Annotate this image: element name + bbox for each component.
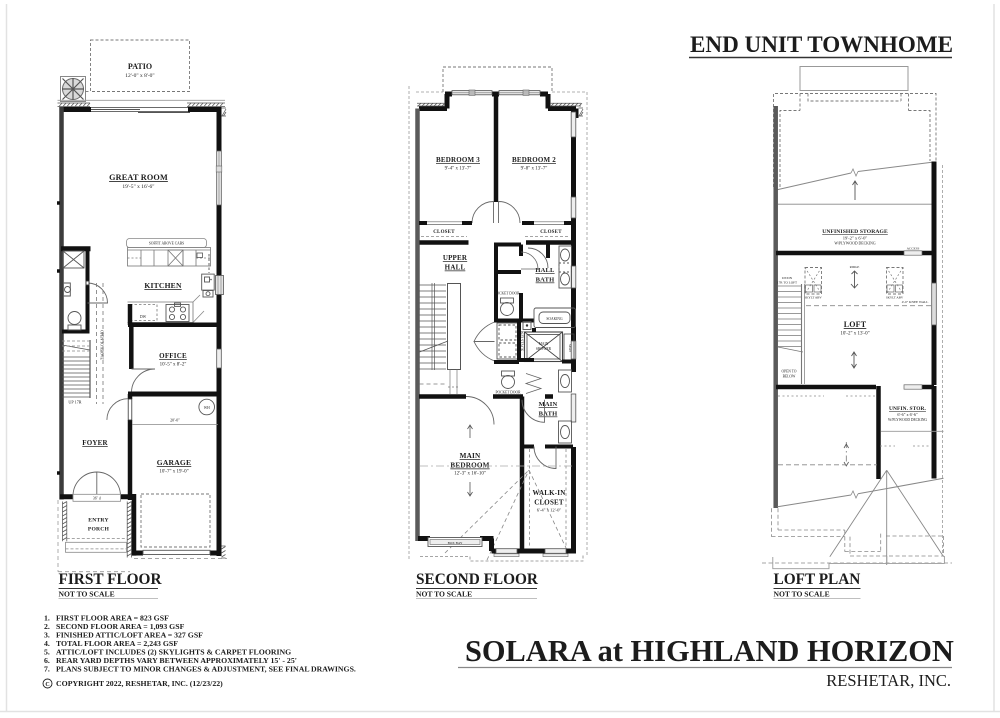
svg-text:LOFT: LOFT	[844, 320, 867, 329]
svg-text:SOLARA at HIGHLAND HORIZON: SOLARA at HIGHLAND HORIZON	[465, 634, 954, 668]
svg-text:6'-4" x 12'-0": 6'-4" x 12'-0"	[537, 508, 562, 513]
svg-text:BOX BAY: BOX BAY	[448, 541, 463, 545]
svg-text:PORCH: PORCH	[88, 527, 110, 533]
svg-text:9'-4" x 13'-7": 9'-4" x 13'-7"	[445, 167, 472, 172]
svg-text:BATH: BATH	[539, 411, 558, 418]
svg-text:19'-2" x 6'-0": 19'-2" x 6'-0"	[843, 236, 868, 241]
svg-text:MAIN: MAIN	[539, 401, 558, 408]
svg-text:NOT TO SCALE: NOT TO SCALE	[59, 590, 115, 599]
svg-text:PLANS SUBJECT TO MINOR CHANGES: PLANS SUBJECT TO MINOR CHANGES & ADJUSTM…	[56, 665, 356, 674]
svg-text:10'-7" x 19'-0": 10'-7" x 19'-0"	[159, 470, 188, 475]
svg-text:GREAT ROOM: GREAT ROOM	[109, 173, 168, 182]
svg-text:6'-6" x 6'-6": 6'-6" x 6'-6"	[897, 412, 918, 417]
svg-text:KITCHEN: KITCHEN	[144, 281, 182, 290]
svg-text:BEDROOM 2: BEDROOM 2	[512, 156, 556, 164]
svg-text:FOYER: FOYER	[82, 439, 108, 447]
svg-text:CLOSET: CLOSET	[540, 230, 562, 235]
svg-text:9'-8" x 13'-7": 9'-8" x 13'-7"	[521, 167, 548, 172]
svg-text:DW: DW	[140, 315, 147, 319]
svg-text:BATH: BATH	[536, 277, 555, 284]
svg-text:NOT TO SCALE: NOT TO SCALE	[774, 590, 830, 599]
svg-text:W/PLYWOOD DECKING: W/PLYWOOD DECKING	[888, 418, 927, 422]
svg-text:BELOW: BELOW	[783, 375, 796, 379]
svg-text:NOT TO SCALE: NOT TO SCALE	[416, 590, 472, 599]
svg-text:CLOSET: CLOSET	[433, 230, 455, 235]
svg-text:UNFINISHED STORAGE: UNFINISHED STORAGE	[822, 229, 888, 235]
svg-text:COPYRIGHT 2022, RESHETAR, INC.: COPYRIGHT 2022, RESHETAR, INC. (12/23/22…	[56, 679, 223, 688]
svg-text:36" d: 36" d	[93, 497, 101, 501]
svg-text:C: C	[45, 682, 49, 688]
svg-text:RESHETAR, INC.: RESHETAR, INC.	[826, 671, 951, 690]
svg-text:SEAT: SEAT	[568, 344, 572, 353]
svg-text:WH: WH	[204, 406, 210, 410]
svg-text:WALK-IN: WALK-IN	[533, 489, 566, 497]
svg-text:12'-0" x 8'-0": 12'-0" x 8'-0"	[125, 73, 154, 79]
svg-text:HALL: HALL	[445, 264, 466, 272]
svg-text:SOFFIT ABOVE CABS: SOFFIT ABOVE CABS	[149, 242, 184, 246]
svg-text:7.: 7.	[44, 665, 50, 674]
svg-text:SKYLT ABV: SKYLT ABV	[804, 296, 822, 300]
svg-text:OPEN TO ABOVE: OPEN TO ABOVE	[100, 330, 104, 360]
svg-text:GARAGE: GARAGE	[157, 458, 192, 467]
svg-text:OPEN TO: OPEN TO	[782, 370, 797, 374]
svg-text:CLOSET: CLOSET	[534, 499, 564, 507]
svg-text:RIDGE: RIDGE	[850, 265, 860, 269]
svg-text:OFFICE: OFFICE	[159, 352, 187, 360]
svg-text:4'-0" KNEE WALL: 4'-0" KNEE WALL	[902, 300, 929, 304]
svg-text:10'-5" x 8'-2": 10'-5" x 8'-2"	[160, 363, 187, 368]
svg-text:POCKET DOOR: POCKET DOOR	[496, 391, 522, 395]
svg-text:SHOWER: SHOWER	[536, 347, 552, 351]
svg-text:19'-5" x 16'-6": 19'-5" x 16'-6"	[122, 184, 154, 190]
svg-text:LOFT PLAN: LOFT PLAN	[774, 571, 861, 588]
svg-text:FIRST FLOOR: FIRST FLOOR	[59, 571, 163, 588]
svg-text:UP 17R: UP 17R	[68, 400, 81, 405]
svg-text:ACCESS: ACCESS	[907, 247, 920, 251]
svg-text:SOAKING: SOAKING	[546, 317, 563, 321]
svg-text:MAIN: MAIN	[539, 342, 549, 346]
svg-text:SECOND FLOOR: SECOND FLOOR	[416, 571, 539, 588]
svg-text:MAIN: MAIN	[460, 452, 481, 460]
svg-text:SKYLT ABV: SKYLT ABV	[886, 296, 904, 300]
svg-text:17R TO LOFT: 17R TO LOFT	[777, 281, 798, 285]
svg-text:POCKET DOOR: POCKET DOOR	[495, 292, 521, 296]
svg-text:W/PLYWOOD DECKING: W/PLYWOOD DECKING	[834, 242, 876, 246]
svg-text:BEDROOM: BEDROOM	[450, 462, 489, 470]
svg-text:UP/DN: UP/DN	[782, 276, 793, 280]
svg-text:BEDROOM 3: BEDROOM 3	[436, 156, 480, 164]
svg-text:END UNIT TOWNHOME: END UNIT TOWNHOME	[690, 31, 953, 57]
svg-text:PATIO: PATIO	[128, 62, 152, 71]
svg-text:UPPER: UPPER	[443, 254, 468, 262]
svg-text:10'-2" x 13'-0": 10'-2" x 13'-0"	[840, 332, 869, 337]
svg-text:20'-0": 20'-0"	[170, 418, 180, 423]
svg-text:12'-3" x 16'-10": 12'-3" x 16'-10"	[454, 472, 486, 477]
svg-text:ENTRY: ENTRY	[88, 518, 108, 524]
